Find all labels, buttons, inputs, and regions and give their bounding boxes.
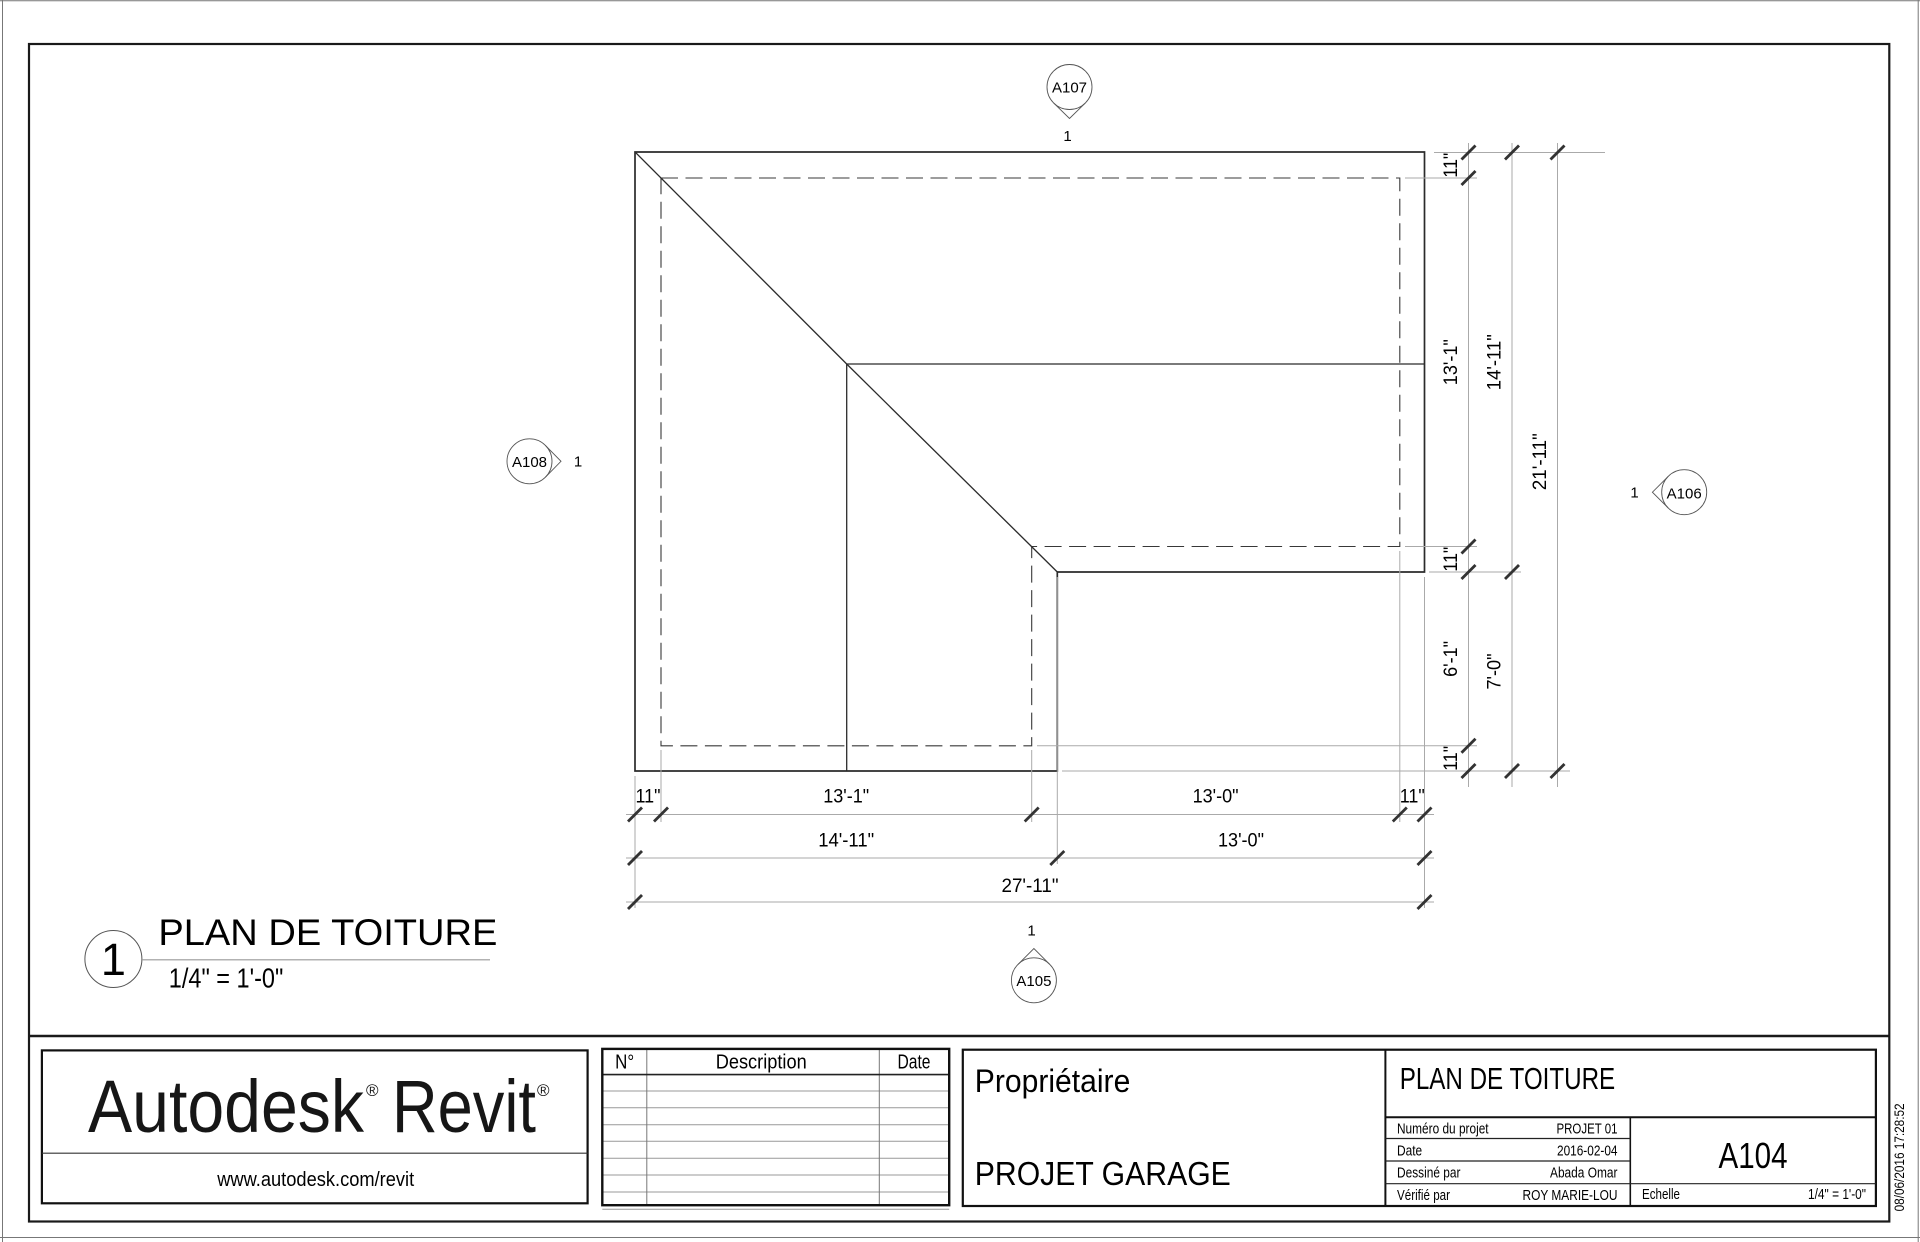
svg-text:®: ® [537, 1081, 550, 1100]
svg-text:08/06/2016 17:28:52: 08/06/2016 17:28:52 [1891, 1103, 1907, 1211]
svg-text:A104: A104 [1719, 1135, 1788, 1176]
svg-text:A108: A108 [512, 454, 547, 471]
svg-text:11": 11" [1400, 786, 1425, 808]
svg-text:Date: Date [898, 1052, 931, 1074]
svg-text:Dessiné par: Dessiné par [1397, 1165, 1461, 1181]
svg-text:PROJET GARAGE: PROJET GARAGE [975, 1156, 1231, 1193]
svg-text:PROJET 01: PROJET 01 [1557, 1122, 1618, 1138]
svg-text:11": 11" [1440, 153, 1462, 178]
svg-text:1: 1 [574, 454, 582, 471]
svg-text:11": 11" [1440, 547, 1462, 572]
svg-text:1: 1 [1027, 923, 1035, 940]
svg-text:14'-11": 14'-11" [818, 830, 874, 852]
svg-text:www.autodesk.com/revit: www.autodesk.com/revit [216, 1169, 414, 1191]
svg-text:Numéro du projet: Numéro du projet [1397, 1122, 1489, 1138]
svg-text:A106: A106 [1667, 486, 1702, 503]
svg-text:21'-11": 21'-11" [1529, 433, 1551, 490]
svg-text:Date: Date [1397, 1144, 1422, 1160]
svg-text:13'-1": 13'-1" [1440, 339, 1462, 385]
svg-text:1/4" = 1'-0": 1/4" = 1'-0" [169, 963, 283, 994]
svg-text:Revit: Revit [392, 1065, 536, 1148]
svg-text:13'-0": 13'-0" [1218, 830, 1264, 852]
svg-text:ROY MARIE-LOU: ROY MARIE-LOU [1523, 1188, 1618, 1204]
svg-text:Description: Description [716, 1052, 807, 1074]
svg-text:1/4" = 1'-0": 1/4" = 1'-0" [1808, 1187, 1866, 1203]
svg-text:PLAN DE TOITURE: PLAN DE TOITURE [1400, 1061, 1616, 1096]
svg-text:1: 1 [1630, 485, 1638, 502]
svg-text:Propriétaire: Propriétaire [975, 1063, 1131, 1099]
svg-text:6'-1": 6'-1" [1440, 641, 1462, 677]
svg-text:11": 11" [636, 786, 661, 808]
svg-text:Autodesk: Autodesk [88, 1065, 365, 1148]
svg-text:1: 1 [1063, 128, 1071, 145]
svg-text:27'-11": 27'-11" [1002, 875, 1059, 897]
svg-text:A105: A105 [1016, 973, 1051, 990]
svg-text:PLAN DE TOITURE: PLAN DE TOITURE [158, 911, 497, 953]
svg-text:A107: A107 [1052, 80, 1087, 97]
svg-text:11": 11" [1440, 746, 1462, 771]
svg-text:Abada Omar: Abada Omar [1550, 1165, 1618, 1181]
svg-text:7'-0": 7'-0" [1484, 653, 1506, 689]
svg-text:14'-11": 14'-11" [1484, 334, 1506, 390]
svg-text:N°: N° [615, 1052, 634, 1074]
svg-text:®: ® [366, 1081, 379, 1100]
svg-text:2016-02-04: 2016-02-04 [1557, 1144, 1618, 1160]
svg-text:1: 1 [101, 934, 126, 985]
svg-text:13'-0": 13'-0" [1193, 786, 1239, 808]
svg-text:13'-1": 13'-1" [823, 786, 869, 808]
svg-text:Echelle: Echelle [1642, 1187, 1680, 1203]
svg-text:Vérifié par: Vérifié par [1397, 1188, 1450, 1204]
